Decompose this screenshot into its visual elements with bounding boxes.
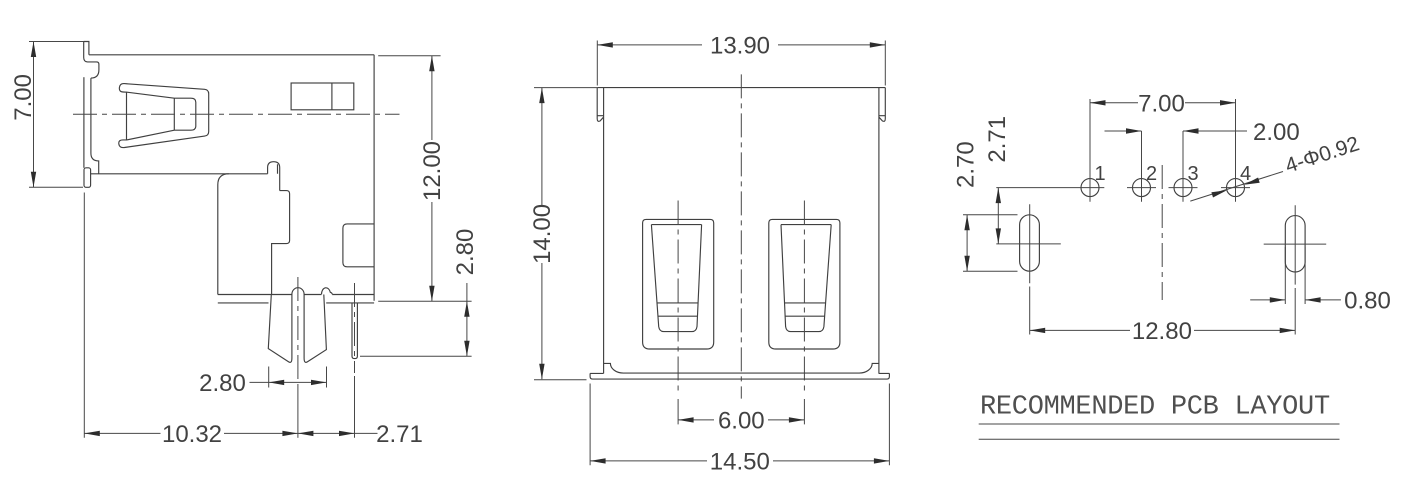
svg-text:14.50: 14.50 — [710, 448, 770, 475]
svg-text:2.70: 2.70 — [953, 141, 980, 188]
svg-text:12.00: 12.00 — [419, 141, 446, 201]
svg-text:2.80: 2.80 — [452, 229, 479, 276]
svg-text:3: 3 — [1188, 163, 1199, 185]
svg-text:2.71: 2.71 — [984, 116, 1011, 163]
svg-text:0.80: 0.80 — [1344, 287, 1391, 314]
svg-text:2: 2 — [1146, 163, 1157, 185]
svg-text:2.80: 2.80 — [199, 370, 246, 397]
svg-text:2.71: 2.71 — [376, 421, 423, 448]
svg-text:7.00: 7.00 — [1138, 90, 1185, 117]
svg-text:12.80: 12.80 — [1132, 318, 1192, 345]
svg-text:2.00: 2.00 — [1253, 119, 1300, 146]
svg-text:RECOMMENDED PCB LAYOUT: RECOMMENDED PCB LAYOUT — [980, 392, 1330, 422]
svg-text:14.00: 14.00 — [529, 204, 556, 264]
svg-text:6.00: 6.00 — [718, 407, 765, 434]
svg-text:1: 1 — [1095, 163, 1106, 185]
svg-text:10.32: 10.32 — [162, 421, 222, 448]
svg-text:7.00: 7.00 — [10, 74, 37, 121]
svg-text:13.90: 13.90 — [710, 32, 770, 59]
